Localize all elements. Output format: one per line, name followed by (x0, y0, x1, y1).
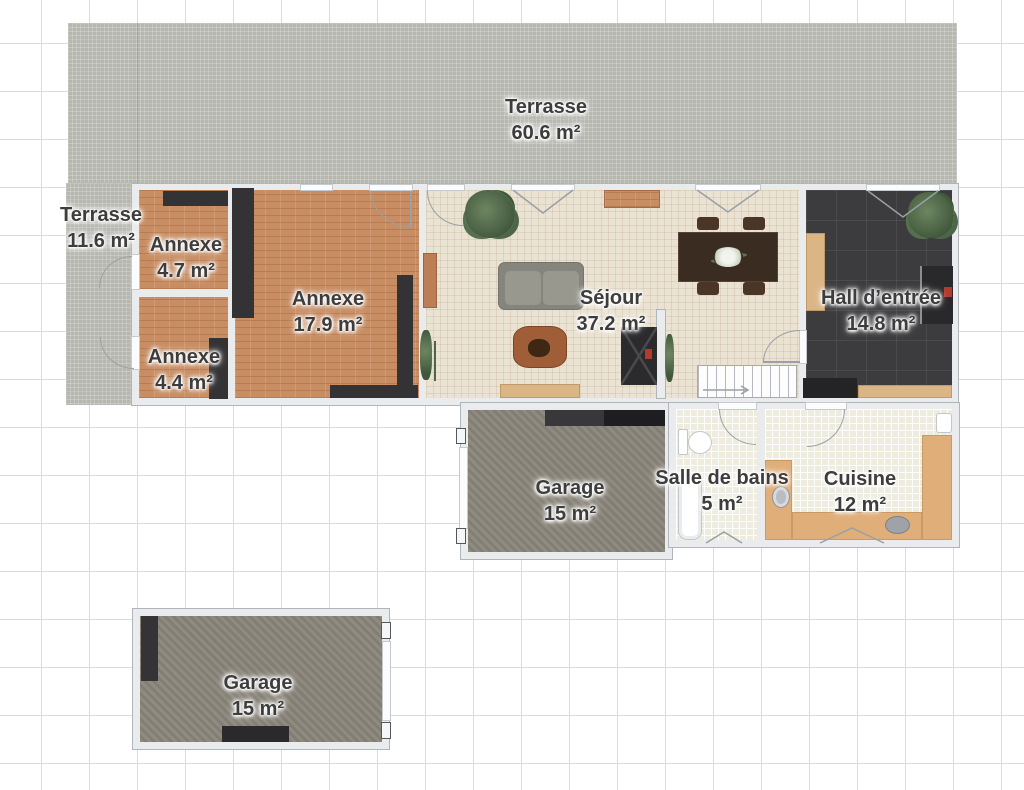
sideboard (604, 190, 660, 208)
room-area: 4.7 m² (150, 258, 222, 284)
chair (743, 282, 765, 295)
garage-cabinet (604, 410, 665, 426)
stove-icon (885, 516, 910, 534)
console (500, 384, 580, 398)
room-name: Terrasse (505, 94, 587, 120)
room-label-cuisine: Cuisine 12 m² (824, 466, 896, 518)
garage-cabinet (545, 410, 604, 426)
chair (697, 282, 719, 295)
room-name: Terrasse (60, 202, 142, 228)
sofa-cushion (505, 271, 541, 305)
plant-icon (665, 334, 674, 382)
door-threshold (695, 184, 761, 191)
door-leaf (410, 191, 412, 227)
garage-door-opening (459, 447, 468, 529)
room-area: 5 m² (655, 491, 788, 517)
room-area: 37.2 m² (577, 311, 646, 337)
room-label-terrasse-left: Terrasse 11.6 m² (60, 202, 142, 254)
room-area: 14.8 m² (821, 311, 941, 337)
room-label-terrasse-top: Terrasse 60.6 m² (505, 94, 587, 146)
room-name: Garage (536, 475, 605, 501)
annexe-cabinet (232, 188, 254, 318)
door-threshold (369, 184, 413, 191)
fridge-icon (936, 413, 952, 433)
entrance-threshold (866, 184, 940, 191)
door-threshold (511, 184, 575, 191)
sofa (498, 262, 584, 310)
kitchen-counter (922, 435, 952, 540)
room-label-annexe-4-4: Annexe 4.4 m² (148, 344, 220, 396)
door-hinge (381, 622, 391, 639)
room-area: 60.6 m² (505, 120, 587, 146)
room-name: Garage (224, 670, 293, 696)
shoe-cabinet (803, 378, 857, 398)
garage-door-opening (382, 641, 391, 721)
dining-table (678, 232, 778, 282)
room-area: 15 m² (536, 501, 605, 527)
window-threshold (300, 184, 333, 191)
table-decor (528, 339, 550, 357)
room-area: 17.9 m² (292, 312, 364, 338)
sofa-cushion (543, 271, 579, 305)
annexe-cabinet (163, 191, 228, 206)
plant-icon (420, 330, 432, 380)
wall-stub (657, 310, 665, 398)
room-label-hall: Hall d’entrée 14.8 m² (821, 285, 941, 337)
garage-cabinet (222, 726, 289, 742)
flower-centerpiece (713, 247, 743, 267)
doormat (858, 385, 952, 398)
annexe-cabinet (330, 385, 418, 398)
room-name: Salle de bains (655, 465, 788, 491)
room-label-sejour: Séjour 37.2 m² (577, 285, 646, 337)
staircase (697, 365, 797, 398)
coffee-table (513, 326, 567, 368)
room-area: 15 m² (224, 696, 293, 722)
door-hinge (381, 722, 391, 739)
door-threshold (131, 254, 140, 290)
door-hinge (456, 428, 466, 444)
garage-cabinet (141, 616, 158, 681)
door-leaf (763, 361, 800, 363)
room-area: 4.4 m² (148, 370, 220, 396)
annexe-cabinet (397, 275, 413, 388)
plant-icon (465, 190, 515, 238)
terrace-divider-line (137, 23, 138, 183)
console (423, 253, 437, 308)
room-label-garage-detached: Garage 15 m² (224, 670, 293, 722)
chair (743, 217, 765, 230)
room-name: Hall d’entrée (821, 285, 941, 311)
plant-icon (908, 192, 954, 238)
room-label-garage-attached: Garage 15 m² (536, 475, 605, 527)
room-name: Annexe (148, 344, 220, 370)
room-label-annexe-4-7: Annexe 4.7 m² (150, 232, 222, 284)
room-area: 11.6 m² (60, 228, 142, 254)
room-area: 12 m² (824, 492, 896, 518)
toilet-icon (678, 429, 688, 455)
cabinet-logo (944, 287, 952, 297)
room-name: Annexe (292, 286, 364, 312)
room-name: Séjour (577, 285, 646, 311)
door-threshold (799, 330, 807, 364)
toilet-icon (688, 431, 712, 454)
room-name: Annexe (150, 232, 222, 258)
room-label-salle-de-bains: Salle de bains 5 m² (655, 465, 788, 517)
room-label-annexe-17-9: Annexe 17.9 m² (292, 286, 364, 338)
fireplace-logo (645, 349, 652, 359)
door-hinge (456, 528, 466, 544)
door-threshold (427, 184, 465, 191)
chair (697, 217, 719, 230)
floor-plan-canvas: Terrasse 60.6 m² Terrasse 11.6 m² Annexe… (0, 0, 1024, 790)
room-name: Cuisine (824, 466, 896, 492)
